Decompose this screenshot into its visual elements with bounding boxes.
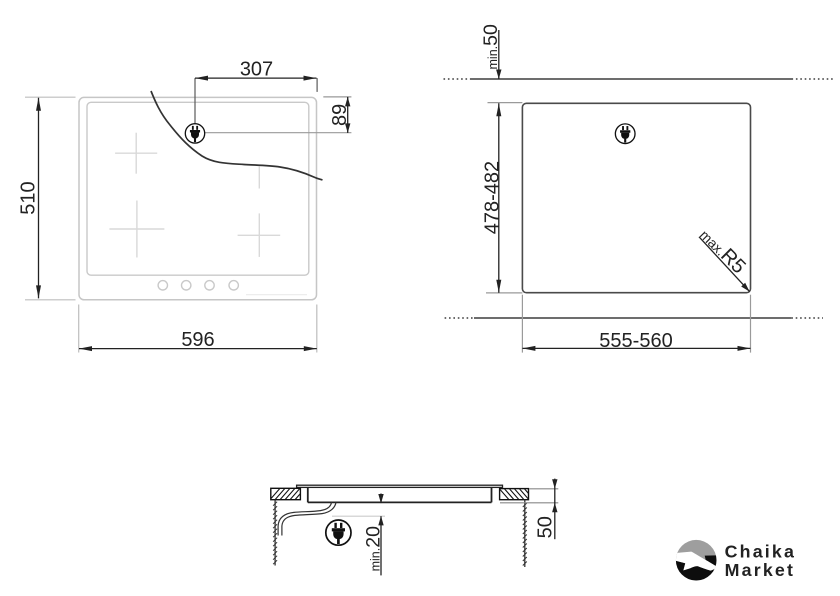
svg-text:89: 89 — [329, 104, 351, 126]
svg-text:555-560: 555-560 — [599, 330, 672, 352]
svg-text:max.R5: max.R5 — [695, 224, 749, 278]
svg-text:Market: Market — [725, 560, 796, 580]
svg-text:596: 596 — [181, 329, 214, 351]
svg-text:510: 510 — [18, 181, 40, 214]
svg-text:min.50: min.50 — [480, 24, 502, 69]
svg-text:Chaika: Chaika — [725, 542, 797, 562]
svg-text:307: 307 — [240, 58, 273, 80]
svg-text:min.20: min.20 — [363, 526, 385, 571]
svg-text:50: 50 — [535, 516, 557, 538]
svg-text:478-482: 478-482 — [481, 161, 503, 234]
